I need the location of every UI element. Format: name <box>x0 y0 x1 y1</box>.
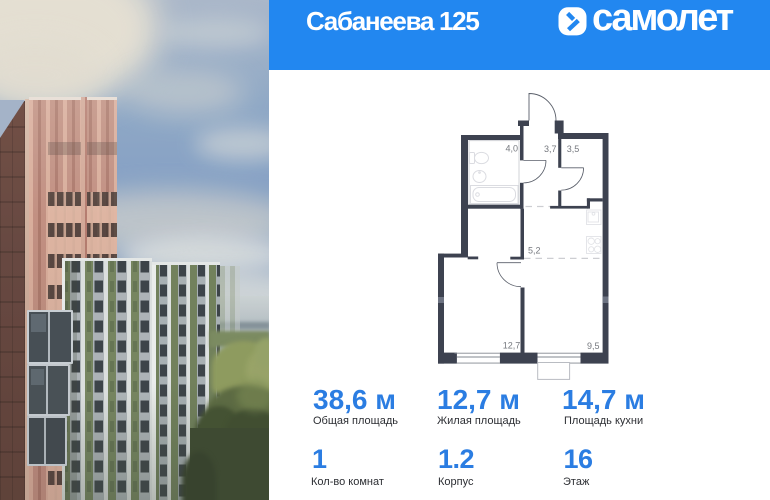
svg-text:5,2: 5,2 <box>528 246 541 256</box>
svg-text:9,5: 9,5 <box>587 341 600 351</box>
svg-text:3,7: 3,7 <box>544 144 557 154</box>
svg-text:3,5: 3,5 <box>567 144 580 154</box>
svg-text:12,7: 12,7 <box>503 340 521 350</box>
svg-text:4,0: 4,0 <box>506 144 519 154</box>
